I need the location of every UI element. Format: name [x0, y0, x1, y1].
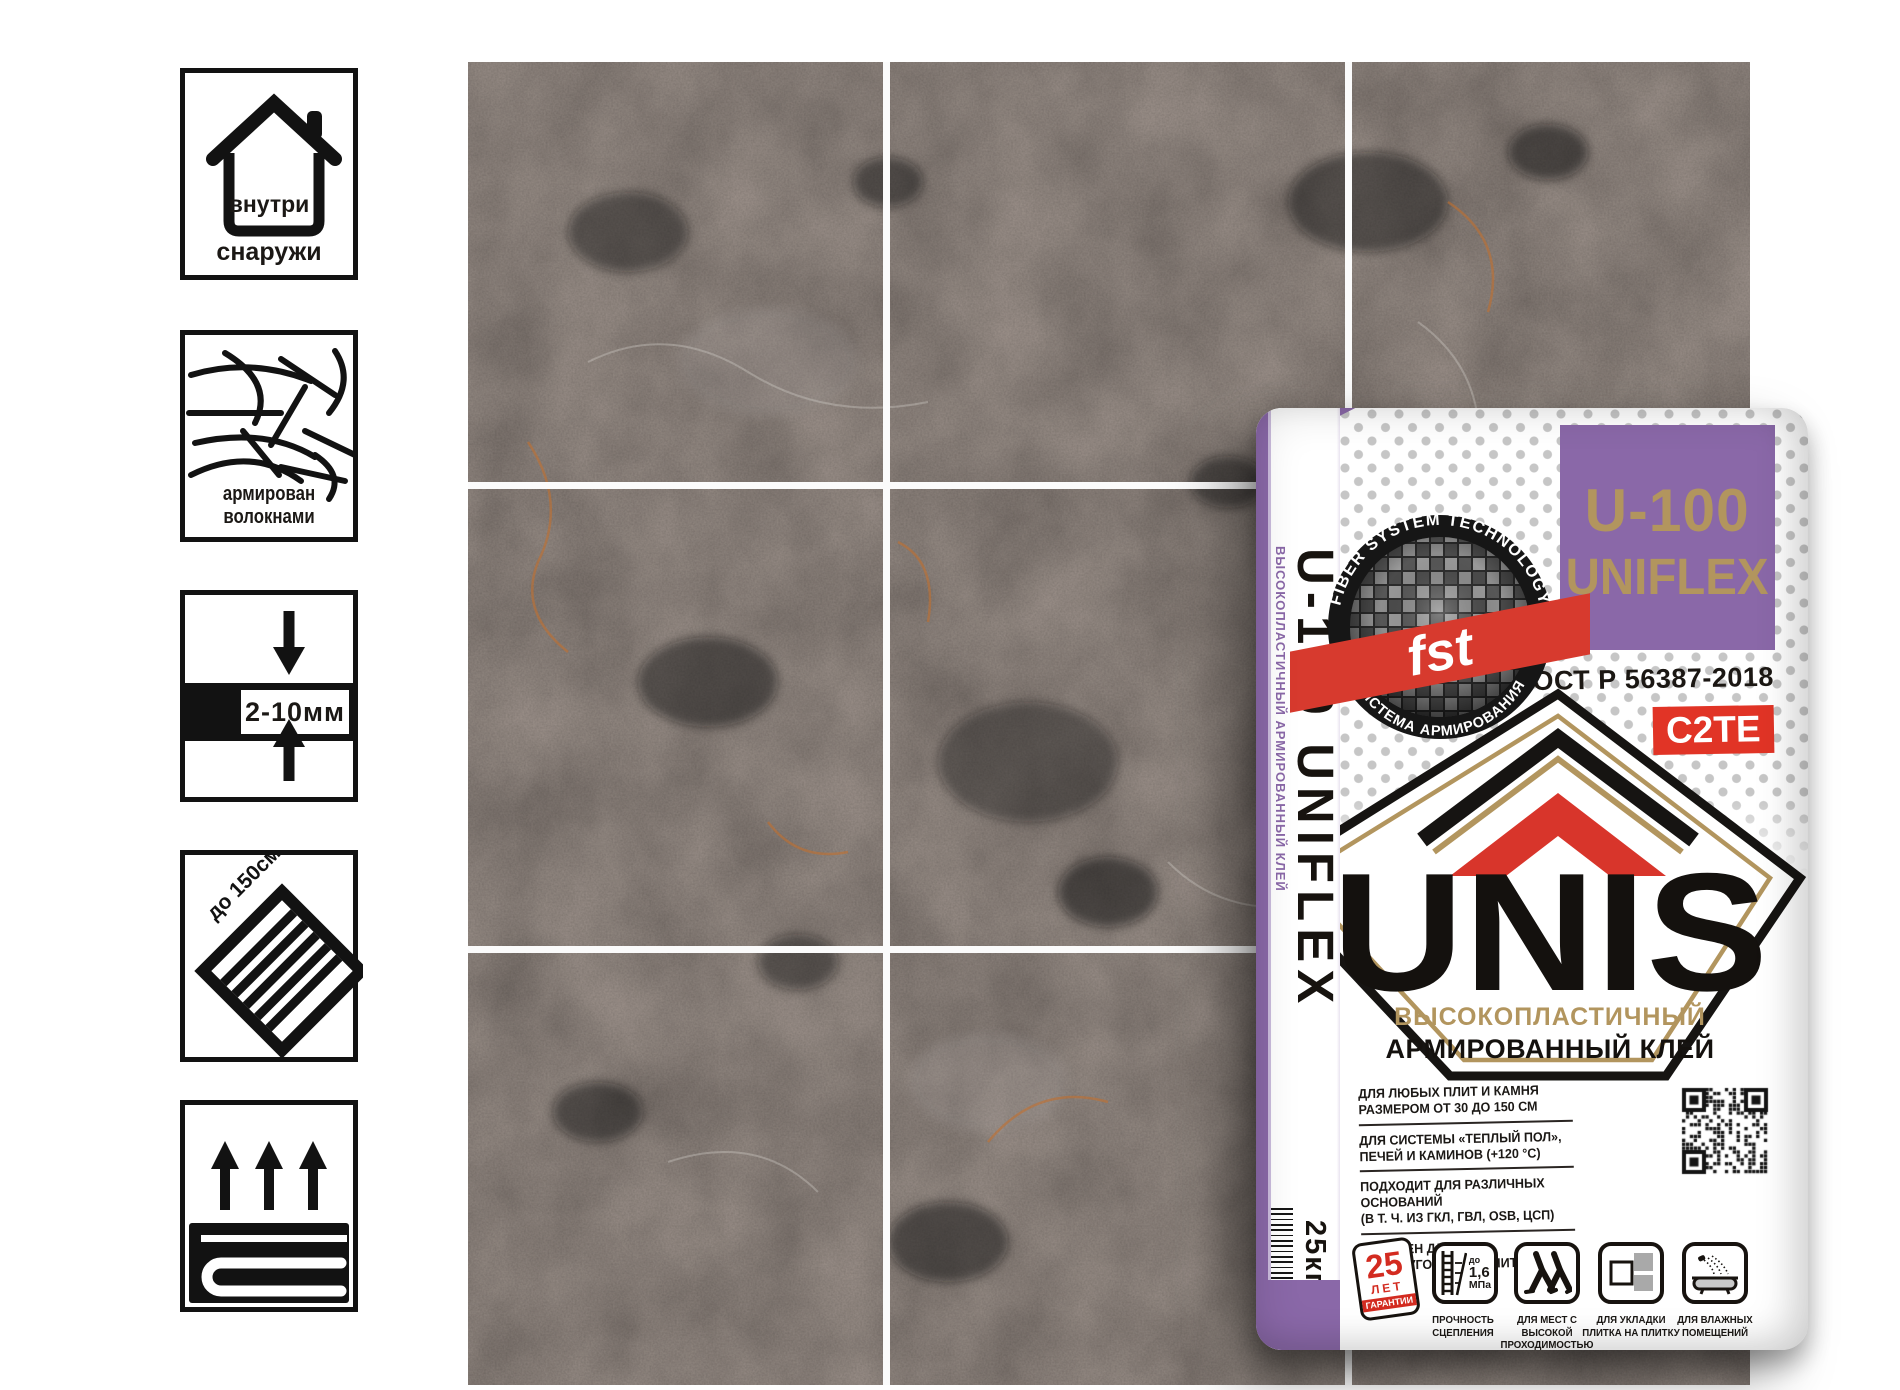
title-panel: U-100 UNIFLEX — [1560, 425, 1775, 650]
fiber-label: армирован волокнами — [198, 483, 339, 529]
bottom-pictograms: 25 ЛЕТ ГАРАНТИИ до 1,6 — [1256, 1234, 1808, 1350]
feature-line: (В Т. Ч. ИЗ ГКЛ, ГВЛ, OSB, ЦСП) — [1361, 1207, 1565, 1227]
tile-on-tile-icon — [1606, 1250, 1656, 1296]
high-traffic-box — [1514, 1242, 1580, 1304]
fst-badge: FIBER SYSTEM TECHNOLOGY СИСТЕМА АРМИРОВА… — [1290, 487, 1590, 787]
ladder-icon — [1439, 1249, 1467, 1297]
guarantee-badge: 25 ЛЕТ ГАРАНТИИ — [1351, 1236, 1421, 1322]
feature-line: ПОДХОДИТ ДЛЯ РАЗЛИЧНЫХ ОСНОВАНИЙ — [1360, 1175, 1564, 1211]
adhesion-strength-box: до 1,6 МПа — [1432, 1242, 1498, 1304]
thickness-arrows-icon — [185, 595, 363, 797]
feature-divider — [1359, 1119, 1573, 1125]
feature-divider — [1360, 1166, 1574, 1172]
product-name: UNIFLEX — [1566, 547, 1769, 606]
strength-unit: МПа — [1469, 1280, 1491, 1291]
product-code: U-100 — [1585, 476, 1750, 545]
fst-ribbon-label: fst — [1402, 616, 1480, 688]
guarantee-years: 25 — [1364, 1247, 1405, 1283]
underfloor-heating-icon — [185, 1105, 353, 1307]
adhesive-class-badge: C2TE — [1653, 705, 1774, 755]
feature-line: РАЗМЕРОМ ОТ 30 ДО 150 СМ — [1358, 1098, 1562, 1118]
icon-box-indoor-outdoor: внутри снаружи — [180, 68, 358, 280]
guarantee-label: ГАРАНТИИ — [1362, 1293, 1417, 1312]
brand-name: UNIS — [1332, 838, 1768, 1026]
bathtub-icon — [1690, 1250, 1740, 1296]
icon-box-tile-size: до 150см — [180, 850, 358, 1062]
icon-box-thickness: 2-10мм — [180, 590, 358, 802]
strength-value: 1,6 — [1469, 1265, 1490, 1280]
feature-line: ПЕЧЕЙ И КАМИНОВ (+120 °С) — [1359, 1145, 1563, 1165]
icon-box-underfloor-heating — [180, 1100, 358, 1312]
wet-rooms-label: ДЛЯ ВЛАЖНЫХ ПОМЕЩЕНИЙ — [1664, 1314, 1765, 1339]
product-bag: ВЫСОКОПЛАСТИЧНЫЙ АРМИРОВАННЫЙ КЛЕЙ U-100… — [1256, 408, 1808, 1350]
icon-box-fiber: армирован волокнами — [180, 330, 358, 542]
wet-rooms-box — [1682, 1242, 1748, 1304]
subtitle-black: АРМИРОВАННЫЙ КЛЕЙ — [1385, 1033, 1714, 1064]
indoor-label: внутри — [185, 191, 353, 218]
subtitle-gold: ВЫСОКОПЛАСТИЧНЫЙ — [1394, 1001, 1706, 1031]
outdoor-label: снаружи — [185, 238, 353, 267]
walking-people-icon — [1522, 1250, 1572, 1296]
qr-code — [1678, 1084, 1772, 1178]
tile-on-tile-box — [1598, 1242, 1664, 1304]
grout-line-vertical — [883, 62, 890, 1385]
large-tile-icon: до 150см — [185, 855, 363, 1057]
